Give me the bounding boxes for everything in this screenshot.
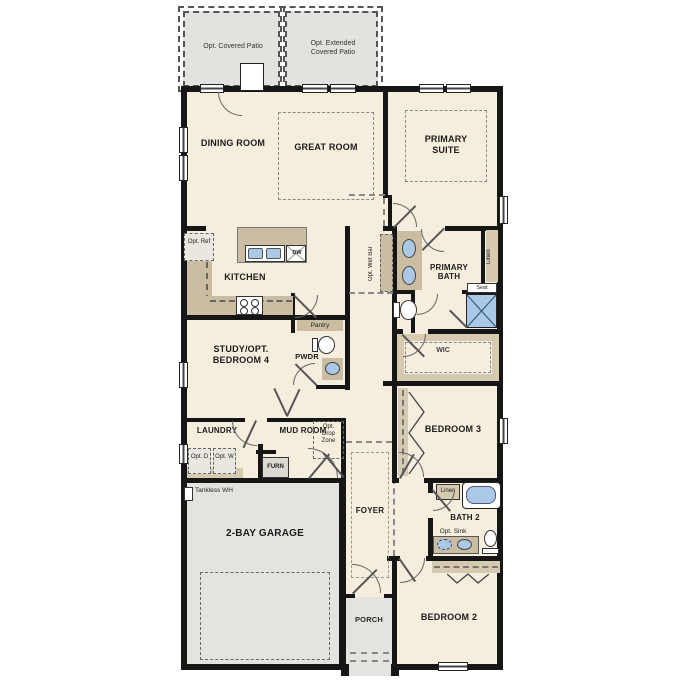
room-kitchen-label: KITCHEN: [205, 272, 285, 283]
great-room-optional-outline: [278, 112, 374, 200]
room-bedroom2-label: BEDROOM 2: [408, 612, 490, 623]
bifold-door: [447, 573, 489, 585]
wall: [481, 226, 485, 283]
opt-drop-zone-label: Opt. Drop Zone: [316, 424, 341, 445]
window: [179, 362, 188, 388]
closet-rod: [434, 566, 498, 568]
wall: [316, 385, 347, 389]
window: [499, 196, 508, 224]
pwdr-sink: [325, 362, 340, 375]
porch-floor: [346, 597, 393, 676]
room-pwdr-label: PWDR: [291, 353, 323, 362]
opt-ref-label: Opt. Ref: [186, 239, 212, 246]
room-porch-label: PORCH: [348, 616, 390, 625]
cooktop: [236, 296, 263, 315]
wall: [392, 478, 399, 483]
toilet: [393, 302, 400, 318]
opt-covered-patio-label: Opt. Covered Patio: [193, 43, 273, 52]
dishwasher: DW: [286, 245, 306, 262]
wall: [392, 290, 415, 294]
wall: [184, 226, 206, 231]
floor-plan: Opt. Covered Patio Opt. Extended Covered…: [0, 0, 687, 687]
vanity-sink: [402, 266, 416, 285]
window: [438, 662, 468, 671]
refrigerator-optional: Opt. Ref: [184, 233, 214, 261]
room-garage-label: 2-BAY GARAGE: [226, 528, 304, 540]
room-primary-bath-label: PRIMARY BATH: [418, 263, 480, 282]
garage-door-zone: [200, 572, 330, 660]
window: [499, 418, 508, 444]
sink-basin: [266, 248, 281, 259]
wall: [384, 594, 397, 598]
tankless-water-heater: [184, 487, 193, 501]
toilet: [482, 548, 499, 554]
seat-label: Seat: [468, 285, 496, 291]
opt-extended-covered-patio-label: Opt. Extended Covered Patio: [298, 40, 368, 58]
window: [179, 155, 188, 181]
room-bath2-label: BATH 2: [443, 513, 487, 522]
window: [179, 444, 188, 464]
opt-dryer-label: Opt. D: [190, 454, 209, 461]
wall: [388, 195, 392, 228]
cased-opening: [346, 441, 392, 443]
wall: [392, 556, 397, 666]
vanity-sink: [457, 539, 472, 550]
room-bedroom3-label: BEDROOM 3: [415, 424, 491, 435]
sink-basin: [248, 248, 263, 259]
opt-covered-patio: Opt. Covered Patio: [183, 11, 280, 87]
opt-extended-covered-patio: Opt. Extended Covered Patio: [285, 11, 378, 87]
window: [302, 84, 328, 93]
furnace-label: FURN: [264, 464, 287, 471]
wet-bar-label: Opt. Wet Bar: [368, 235, 379, 293]
dryer-optional: Opt. D: [188, 448, 211, 474]
washer-optional: Opt. W: [213, 448, 236, 474]
shower: [466, 294, 497, 328]
tankless-wh-label: Tankless WH: [195, 487, 233, 494]
pantry-label: Pantry: [299, 322, 341, 329]
wall: [345, 226, 350, 390]
wall: [345, 594, 355, 598]
wall: [181, 664, 347, 670]
cased-opening: [393, 478, 395, 556]
wall: [256, 450, 276, 454]
opt-sink-label: Opt. Sink: [434, 528, 472, 535]
dishwasher-label: DW: [289, 250, 305, 256]
toilet: [484, 530, 497, 547]
patio-door-leaf: [240, 63, 264, 91]
porch-step: [350, 660, 389, 662]
bathtub-basin: [466, 486, 496, 504]
room-study-label: STUDY/OPT. BEDROOM 4: [195, 344, 287, 365]
room-primary-suite-label: PRIMARY SUITE: [412, 134, 480, 155]
toilet: [400, 300, 417, 320]
window: [446, 84, 471, 93]
wet-bar-optional: [380, 234, 393, 292]
window: [419, 84, 444, 93]
shower-seat: Seat: [467, 283, 497, 293]
furnace: FURN: [262, 457, 289, 478]
porch-step: [350, 652, 389, 654]
room-dining-label: DINING ROOM: [195, 138, 271, 149]
wall: [183, 478, 345, 483]
window: [330, 84, 356, 93]
bathtub: [462, 482, 501, 509]
room-foyer-label: FOYER: [351, 506, 389, 515]
linen-label: Linen: [486, 234, 497, 279]
window: [179, 127, 188, 153]
room-great-label: GREAT ROOM: [292, 142, 360, 153]
cased-opening: [383, 198, 385, 226]
toilet: [318, 336, 335, 354]
vanity-sink: [402, 239, 416, 258]
room-wic-label: WIC: [428, 347, 458, 355]
opt-washer-label: Opt. W: [215, 454, 234, 461]
optional-sink: [437, 539, 452, 550]
wall: [383, 381, 503, 386]
wall: [383, 86, 388, 198]
